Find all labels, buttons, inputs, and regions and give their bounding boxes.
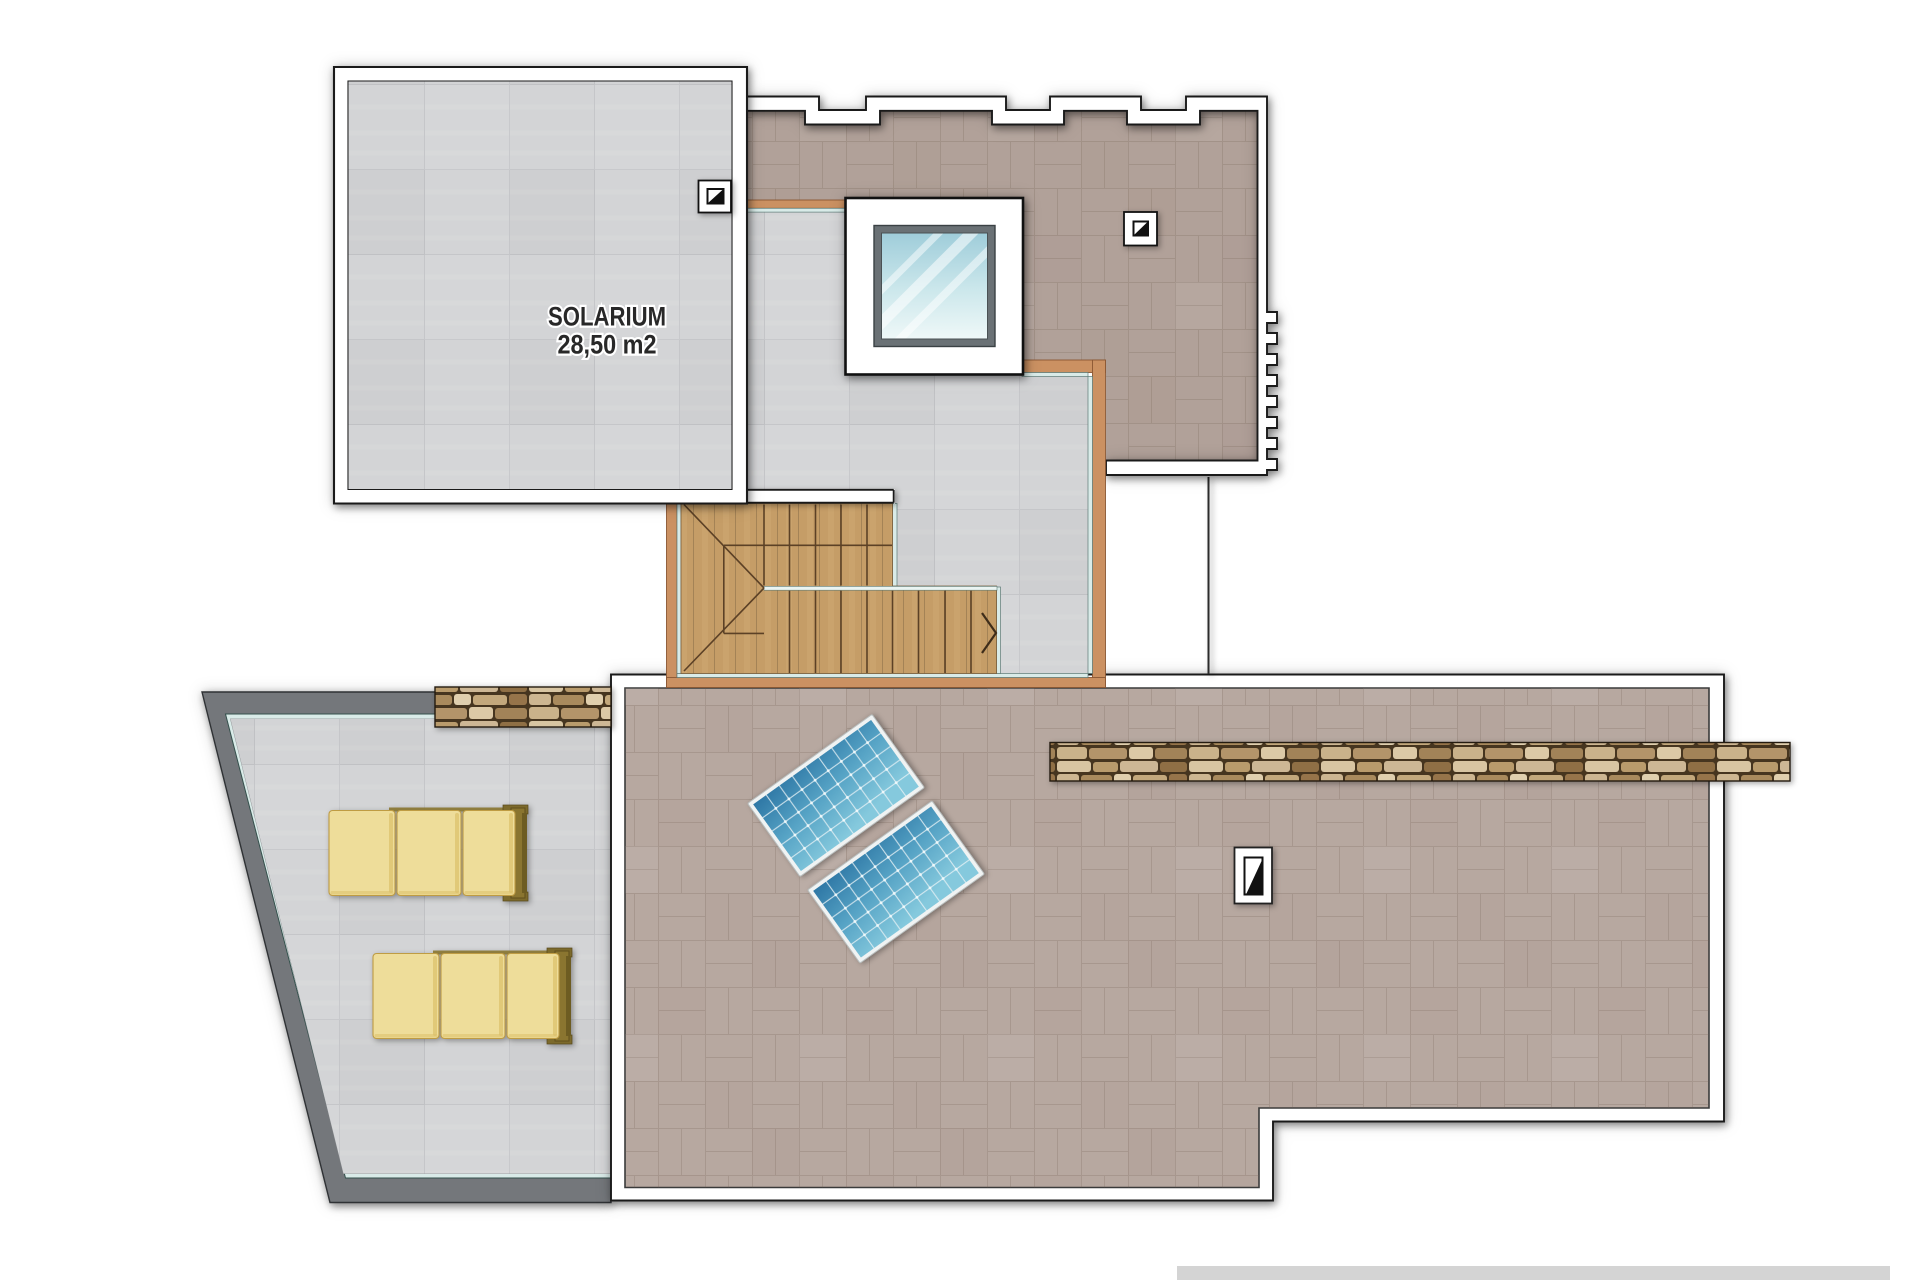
svg-text:SOLARIUM: SOLARIUM — [548, 302, 666, 332]
svg-text:28,50 m2: 28,50 m2 — [558, 330, 657, 360]
